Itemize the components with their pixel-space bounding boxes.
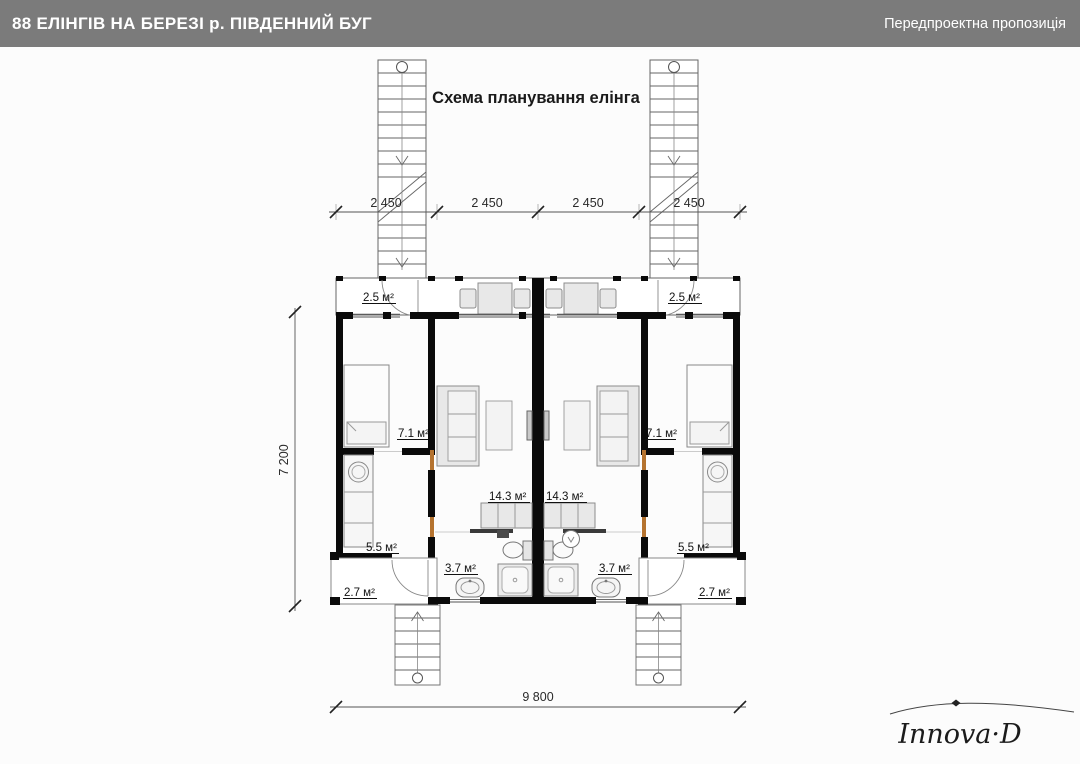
staircase-top-right — [650, 60, 698, 278]
sofa-left — [437, 386, 479, 466]
bed-left — [344, 365, 389, 447]
storage-unit-left — [344, 455, 373, 547]
room-label-porch-right: 2.7 м² — [699, 587, 730, 599]
staircase-bottom-left — [395, 605, 440, 685]
dim-top-2: 2 450 — [471, 196, 502, 210]
stair-start-circle — [397, 62, 408, 73]
room-label-bath-left: 3.7 м² — [445, 563, 476, 575]
dim-top-1: 2 450 — [370, 196, 401, 210]
room-label-living-left: 14.3 м² — [489, 491, 526, 503]
room-label-terrace-left: 2.5 м² — [363, 292, 394, 304]
kitchen-left — [470, 503, 532, 533]
sofa-right — [597, 386, 639, 466]
walls — [336, 278, 740, 604]
room-label-porch-left: 2.7 м² — [344, 587, 375, 599]
shower-left — [498, 564, 532, 596]
tv-left — [527, 411, 532, 440]
kitchen-right — [544, 503, 606, 533]
stair-start-circle — [654, 673, 664, 683]
storage-unit-right — [703, 455, 732, 547]
tv-right — [544, 411, 549, 440]
company-logo: Innova·D — [890, 700, 1074, 751]
duct-stub — [497, 530, 509, 538]
staircase-top-left — [378, 60, 426, 278]
coffee-table-left — [486, 401, 512, 450]
dim-top-4: 2 450 — [673, 196, 704, 210]
logo-arc — [890, 703, 1074, 714]
dim-top-3: 2 450 — [572, 196, 603, 210]
sink-left — [456, 578, 484, 597]
logo-text: Innova·D — [897, 719, 1022, 750]
room-label-storage-left: 5.5 м² — [366, 542, 397, 554]
room-label-bath-right: 3.7 м² — [599, 563, 630, 575]
dimension-bottom: 9 800 — [330, 690, 746, 713]
stair-start-circle — [413, 673, 423, 683]
bed-right — [687, 365, 732, 447]
room-label-bedroom-left: 7.1 м² — [398, 428, 429, 440]
dimension-left: 7 200 — [277, 306, 301, 612]
room-label-bedroom-right: 7.1 м² — [646, 428, 677, 440]
staircase-bottom-right — [636, 605, 681, 685]
toilet-left — [503, 541, 532, 560]
room-label-living-right: 14.3 м² — [546, 491, 583, 503]
coffee-table-right — [564, 401, 590, 450]
plan-title: Схема планування елінга — [432, 89, 640, 107]
dim-bottom: 9 800 — [522, 690, 553, 704]
room-label-terrace-right: 2.5 м² — [669, 292, 700, 304]
stair-start-circle — [669, 62, 680, 73]
room-label-storage-right: 5.5 м² — [678, 542, 709, 554]
sink-right — [592, 578, 620, 597]
dim-left: 7 200 — [277, 444, 291, 475]
logo-diamond — [952, 700, 961, 707]
floor-plan-drawing: Схема планування елінга 2 450 2 450 2 45… — [0, 0, 1080, 764]
shower-right — [544, 564, 578, 596]
water-heater — [563, 531, 580, 548]
